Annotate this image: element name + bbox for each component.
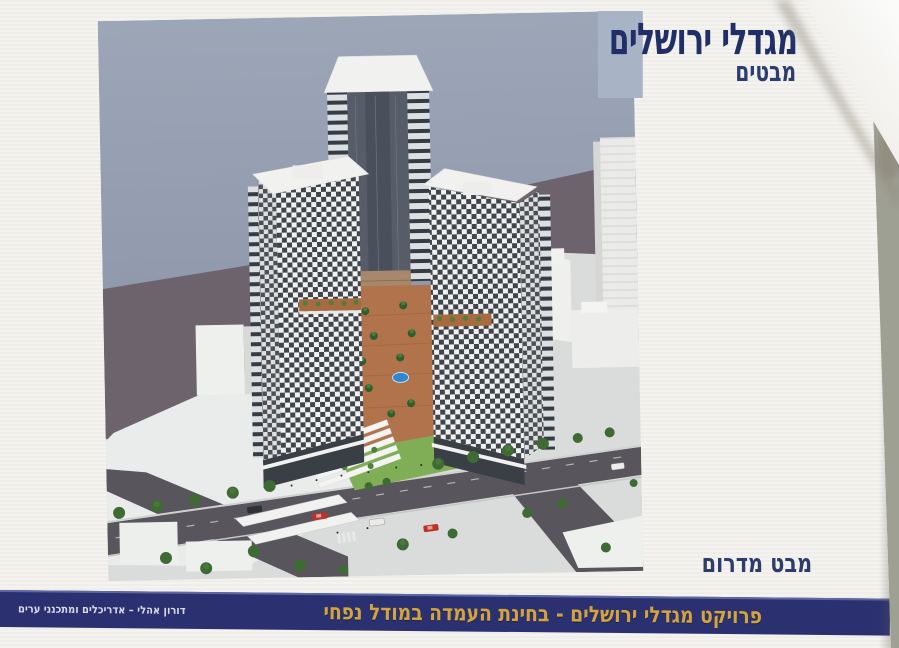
architect-credit: דורון אהלי – אדריכלים ומתכנני ערים <box>18 602 186 617</box>
left-tower <box>247 156 374 488</box>
banner-title: פרויקט מגדלי ירושלים - בחינת העמדה במודל… <box>323 600 762 629</box>
document-page: מגדלי ירושלים מבטים מבט מדרום דורון אהלי… <box>0 0 899 648</box>
right-tower <box>423 167 556 487</box>
page-subtitle: מבטים <box>735 57 796 88</box>
architectural-rendering <box>98 11 644 581</box>
footer-banner: דורון אהלי – אדריכלים ומתכנני ערים פרויק… <box>0 590 890 636</box>
rendering-graphic <box>98 11 644 581</box>
view-direction-label: מבט מדרום <box>701 549 812 579</box>
photographed-document: מגדלי ירושלים מבטים מבט מדרום דורון אהלי… <box>0 0 899 648</box>
